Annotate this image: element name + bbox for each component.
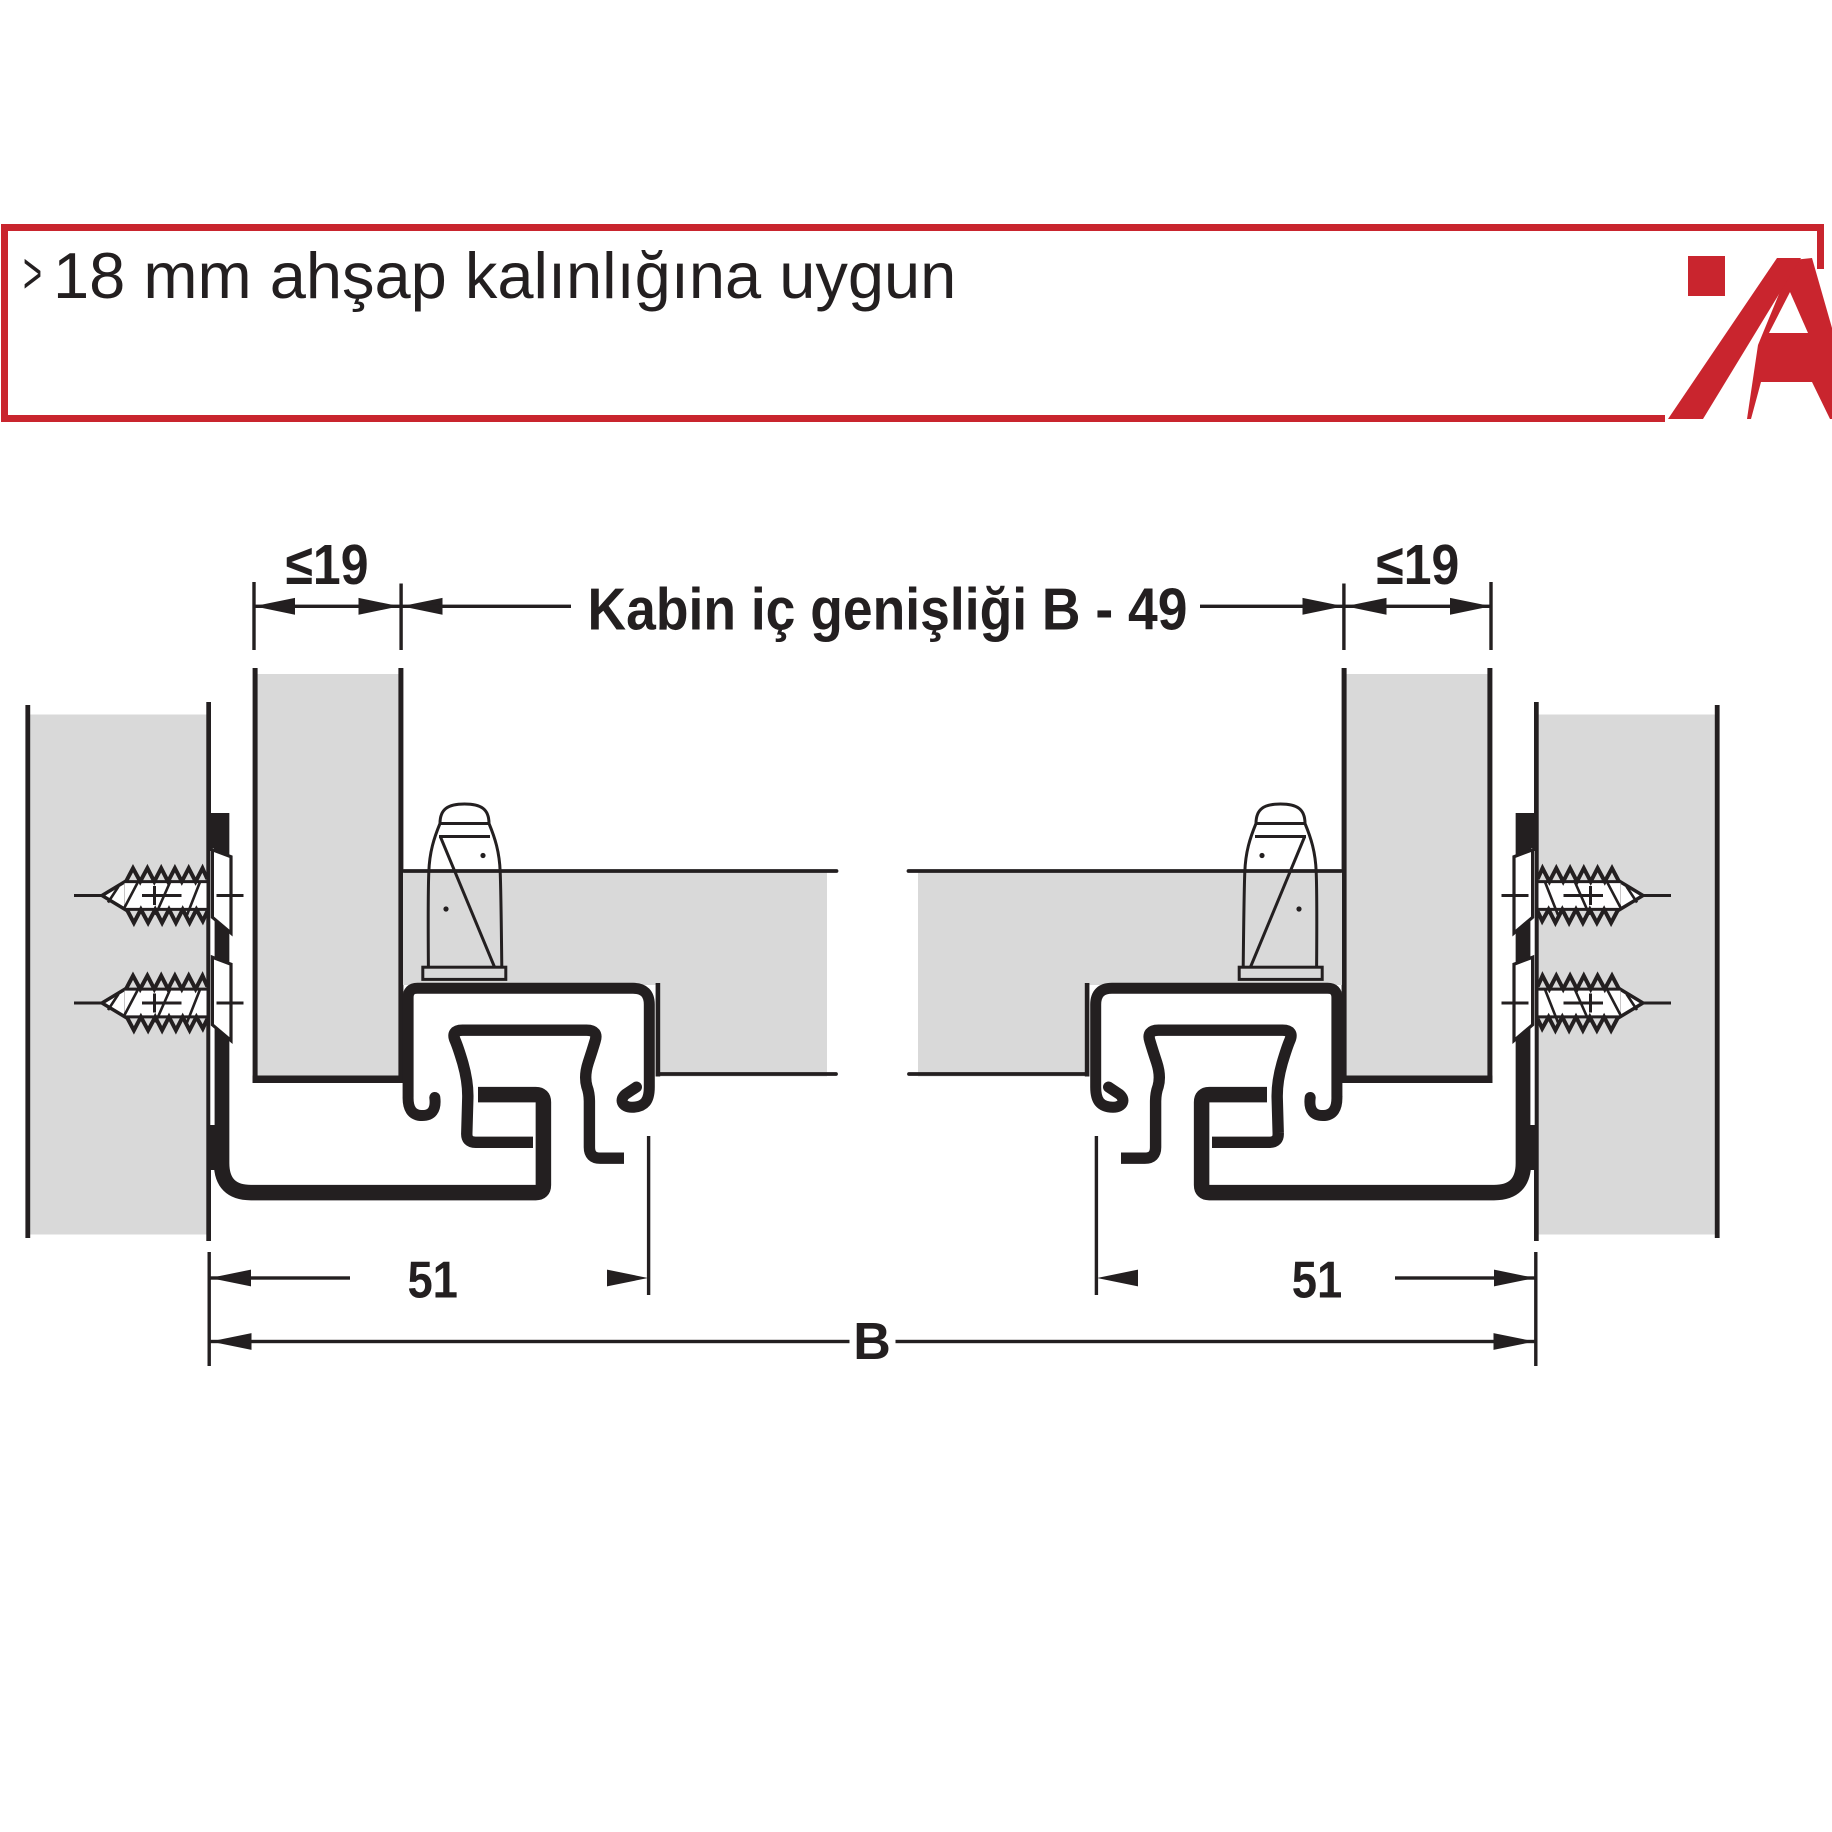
svg-text:≤19: ≤19 xyxy=(1376,533,1459,597)
svg-text:>: > xyxy=(23,241,42,306)
svg-text:≤19: ≤19 xyxy=(286,533,369,597)
svg-text:18 mm ahşap kalınlığına uygun: 18 mm ahşap kalınlığına uygun xyxy=(53,239,956,312)
svg-text:Kabin iç genişliği B - 49: Kabin iç genişliği B - 49 xyxy=(588,577,1188,643)
svg-text:51: 51 xyxy=(1292,1252,1343,1310)
svg-text:51: 51 xyxy=(407,1252,458,1310)
svg-text:B: B xyxy=(853,1313,891,1371)
